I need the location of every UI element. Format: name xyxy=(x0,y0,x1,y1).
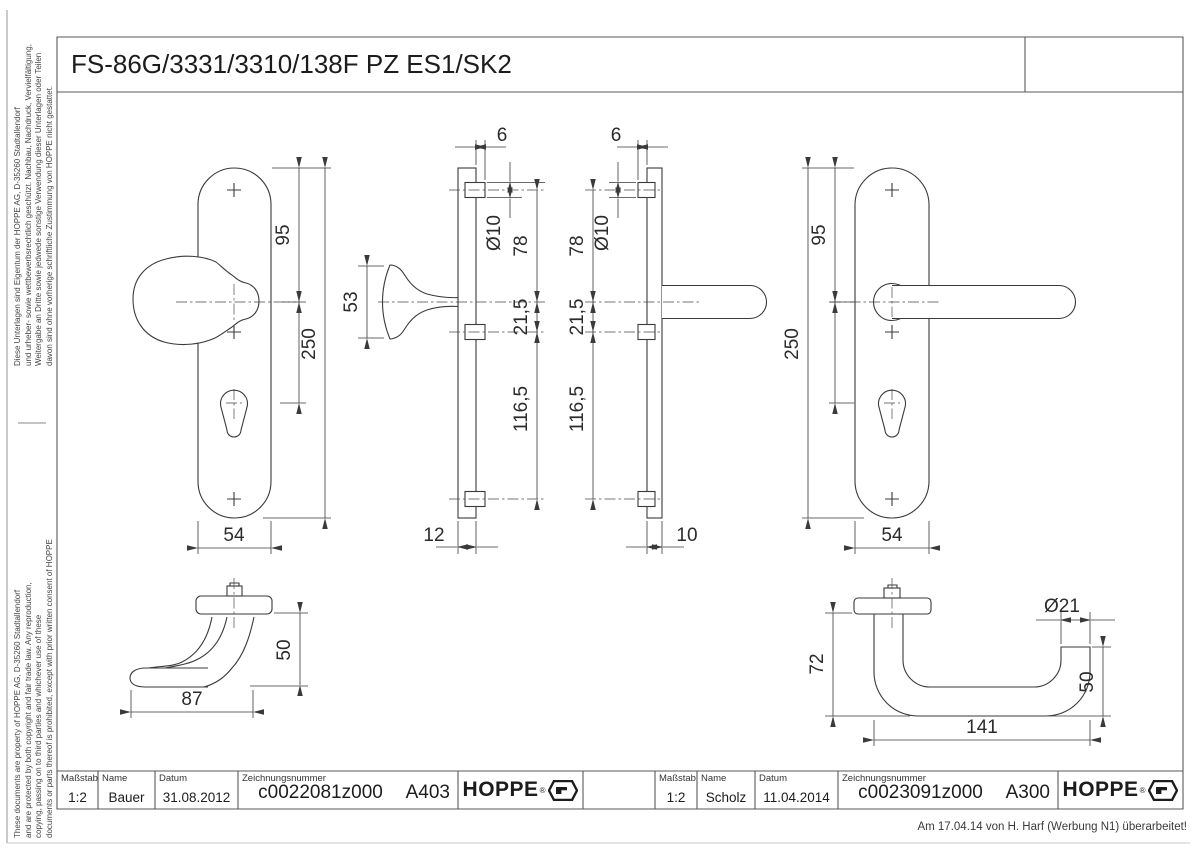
titleblock-left-scale: Maßstab 1:2 xyxy=(57,771,98,809)
dim-116-5: 116,5 xyxy=(511,386,532,432)
date-label: Datum xyxy=(159,773,187,784)
dim-95: 95 xyxy=(809,224,830,245)
view-knob-plate-front: 95 250 54 xyxy=(133,168,331,554)
dim-50: 50 xyxy=(274,639,295,660)
legal-note-line: and are protected by both copyright and … xyxy=(24,539,35,838)
view-lever-side: 72 Ø21 50 141 xyxy=(807,578,1115,746)
scale-label: Maßstab xyxy=(659,773,696,784)
dim-6: 6 xyxy=(497,125,508,146)
view-lever-plate-front: 95 250 54 xyxy=(782,168,1076,554)
hoppe-logo: HOPPE® xyxy=(458,771,583,809)
dim-53: 53 xyxy=(341,291,362,312)
hoppe-logo: HOPPE® xyxy=(1058,771,1183,809)
dim-50: 50 xyxy=(1077,671,1098,692)
legal-note-english: These documents are property of HOPPE AG… xyxy=(13,539,55,838)
view-lever-plate-side: 6 Ø10 78 21,5 116,5 10 xyxy=(567,125,767,554)
drawing-no-value: c0022081z000 xyxy=(238,782,403,804)
registered-mark: ® xyxy=(1140,786,1146,795)
legal-note-line: copying, passing on to third parties and… xyxy=(34,539,45,838)
dim-250: 250 xyxy=(782,328,803,360)
technical-drawing: 95 250 54 53 6 xyxy=(0,0,1200,849)
dim-250: 250 xyxy=(299,328,320,360)
name-value: Bauer xyxy=(98,790,155,805)
legal-note-line: These documents are property of HOPPE AG… xyxy=(13,539,24,838)
name-value: Scholz xyxy=(697,790,755,805)
lever-u-shape xyxy=(874,613,1090,716)
hoppe-logo-icon xyxy=(1148,780,1178,801)
dim-72: 72 xyxy=(807,653,828,674)
legal-note-line: davon sind ohne vorherige schriftliche Z… xyxy=(45,44,56,366)
dim-6: 6 xyxy=(611,125,622,146)
titleblock-right-date: Datum 11.04.2014 xyxy=(755,771,838,809)
scale-label: Maßstab xyxy=(61,773,98,784)
revision-note: Am 17.04.14 von H. Harf (Werbung N1) übe… xyxy=(917,821,1187,833)
name-label: Name xyxy=(102,773,127,784)
dim-10: 10 xyxy=(676,525,697,546)
registered-mark: ® xyxy=(540,786,546,795)
dim-21-5: 21,5 xyxy=(511,299,532,336)
view-knob-side: 50 87 xyxy=(130,578,308,718)
view-knob-plate-side: 53 6 Ø10 78 21,5 116,5 12 xyxy=(341,125,546,554)
dim-116-5: 116,5 xyxy=(567,386,588,432)
titleblock-left-date: Datum 31.08.2012 xyxy=(155,771,238,809)
dim-12: 12 xyxy=(423,525,444,546)
dim-87: 87 xyxy=(181,689,202,710)
dim-d10: Ø10 xyxy=(592,215,613,251)
scale-value: 1:2 xyxy=(57,790,98,805)
legal-note-line: documents or parts thereof is prohibited… xyxy=(45,539,56,838)
legal-note-line: Weitergabe an Dritte sowie jedwede sonst… xyxy=(34,44,45,366)
titleblock-left-drawing-no: Zeichnungsnummer c0022081z000 A403 xyxy=(238,771,458,809)
knob-front xyxy=(133,256,259,344)
dim-d10: Ø10 xyxy=(484,215,505,251)
dim-78: 78 xyxy=(511,235,532,256)
dim-141: 141 xyxy=(966,717,998,738)
drawing-sheet: 95 250 54 53 6 xyxy=(0,0,1200,849)
drawing-title: FS-86G/3331/3310/138F PZ ES1/SK2 xyxy=(71,37,1011,92)
revision-code: A300 xyxy=(1006,782,1050,804)
legal-note-line: Diese Unterlagen sind Eigentum der HOPPE… xyxy=(13,44,24,366)
dim-95: 95 xyxy=(273,224,294,245)
date-label: Datum xyxy=(759,773,787,784)
sheet-frame xyxy=(7,10,1190,843)
titleblock-right-scale: Maßstab 1:2 xyxy=(655,771,697,809)
drawing-no-value: c0023091z000 xyxy=(838,782,1003,804)
titleblock-right-name: Name Scholz xyxy=(697,771,755,809)
titleblock-right-drawing-no: Zeichnungsnummer c0023091z000 A300 xyxy=(838,771,1058,809)
scale-value: 1:2 xyxy=(655,790,697,805)
dim-54: 54 xyxy=(223,525,245,546)
dim-d21: Ø21 xyxy=(1044,596,1080,617)
hoppe-wordmark: HOPPE xyxy=(1063,778,1139,802)
hoppe-logo-icon xyxy=(548,780,578,801)
titleblock-left-name: Name Bauer xyxy=(98,771,155,809)
dim-54: 54 xyxy=(881,525,903,546)
hoppe-wordmark: HOPPE xyxy=(463,778,539,802)
legal-note-line: und urheber- sowie wettbewerbsrechtlich … xyxy=(24,44,35,366)
legal-note-german: Diese Unterlagen sind Eigentum der HOPPE… xyxy=(13,44,55,366)
name-label: Name xyxy=(701,773,726,784)
dim-21-5: 21,5 xyxy=(567,299,588,336)
date-value: 11.04.2014 xyxy=(755,790,838,805)
date-value: 31.08.2012 xyxy=(155,790,238,805)
revision-code: A403 xyxy=(406,782,450,804)
dim-78: 78 xyxy=(567,235,588,256)
